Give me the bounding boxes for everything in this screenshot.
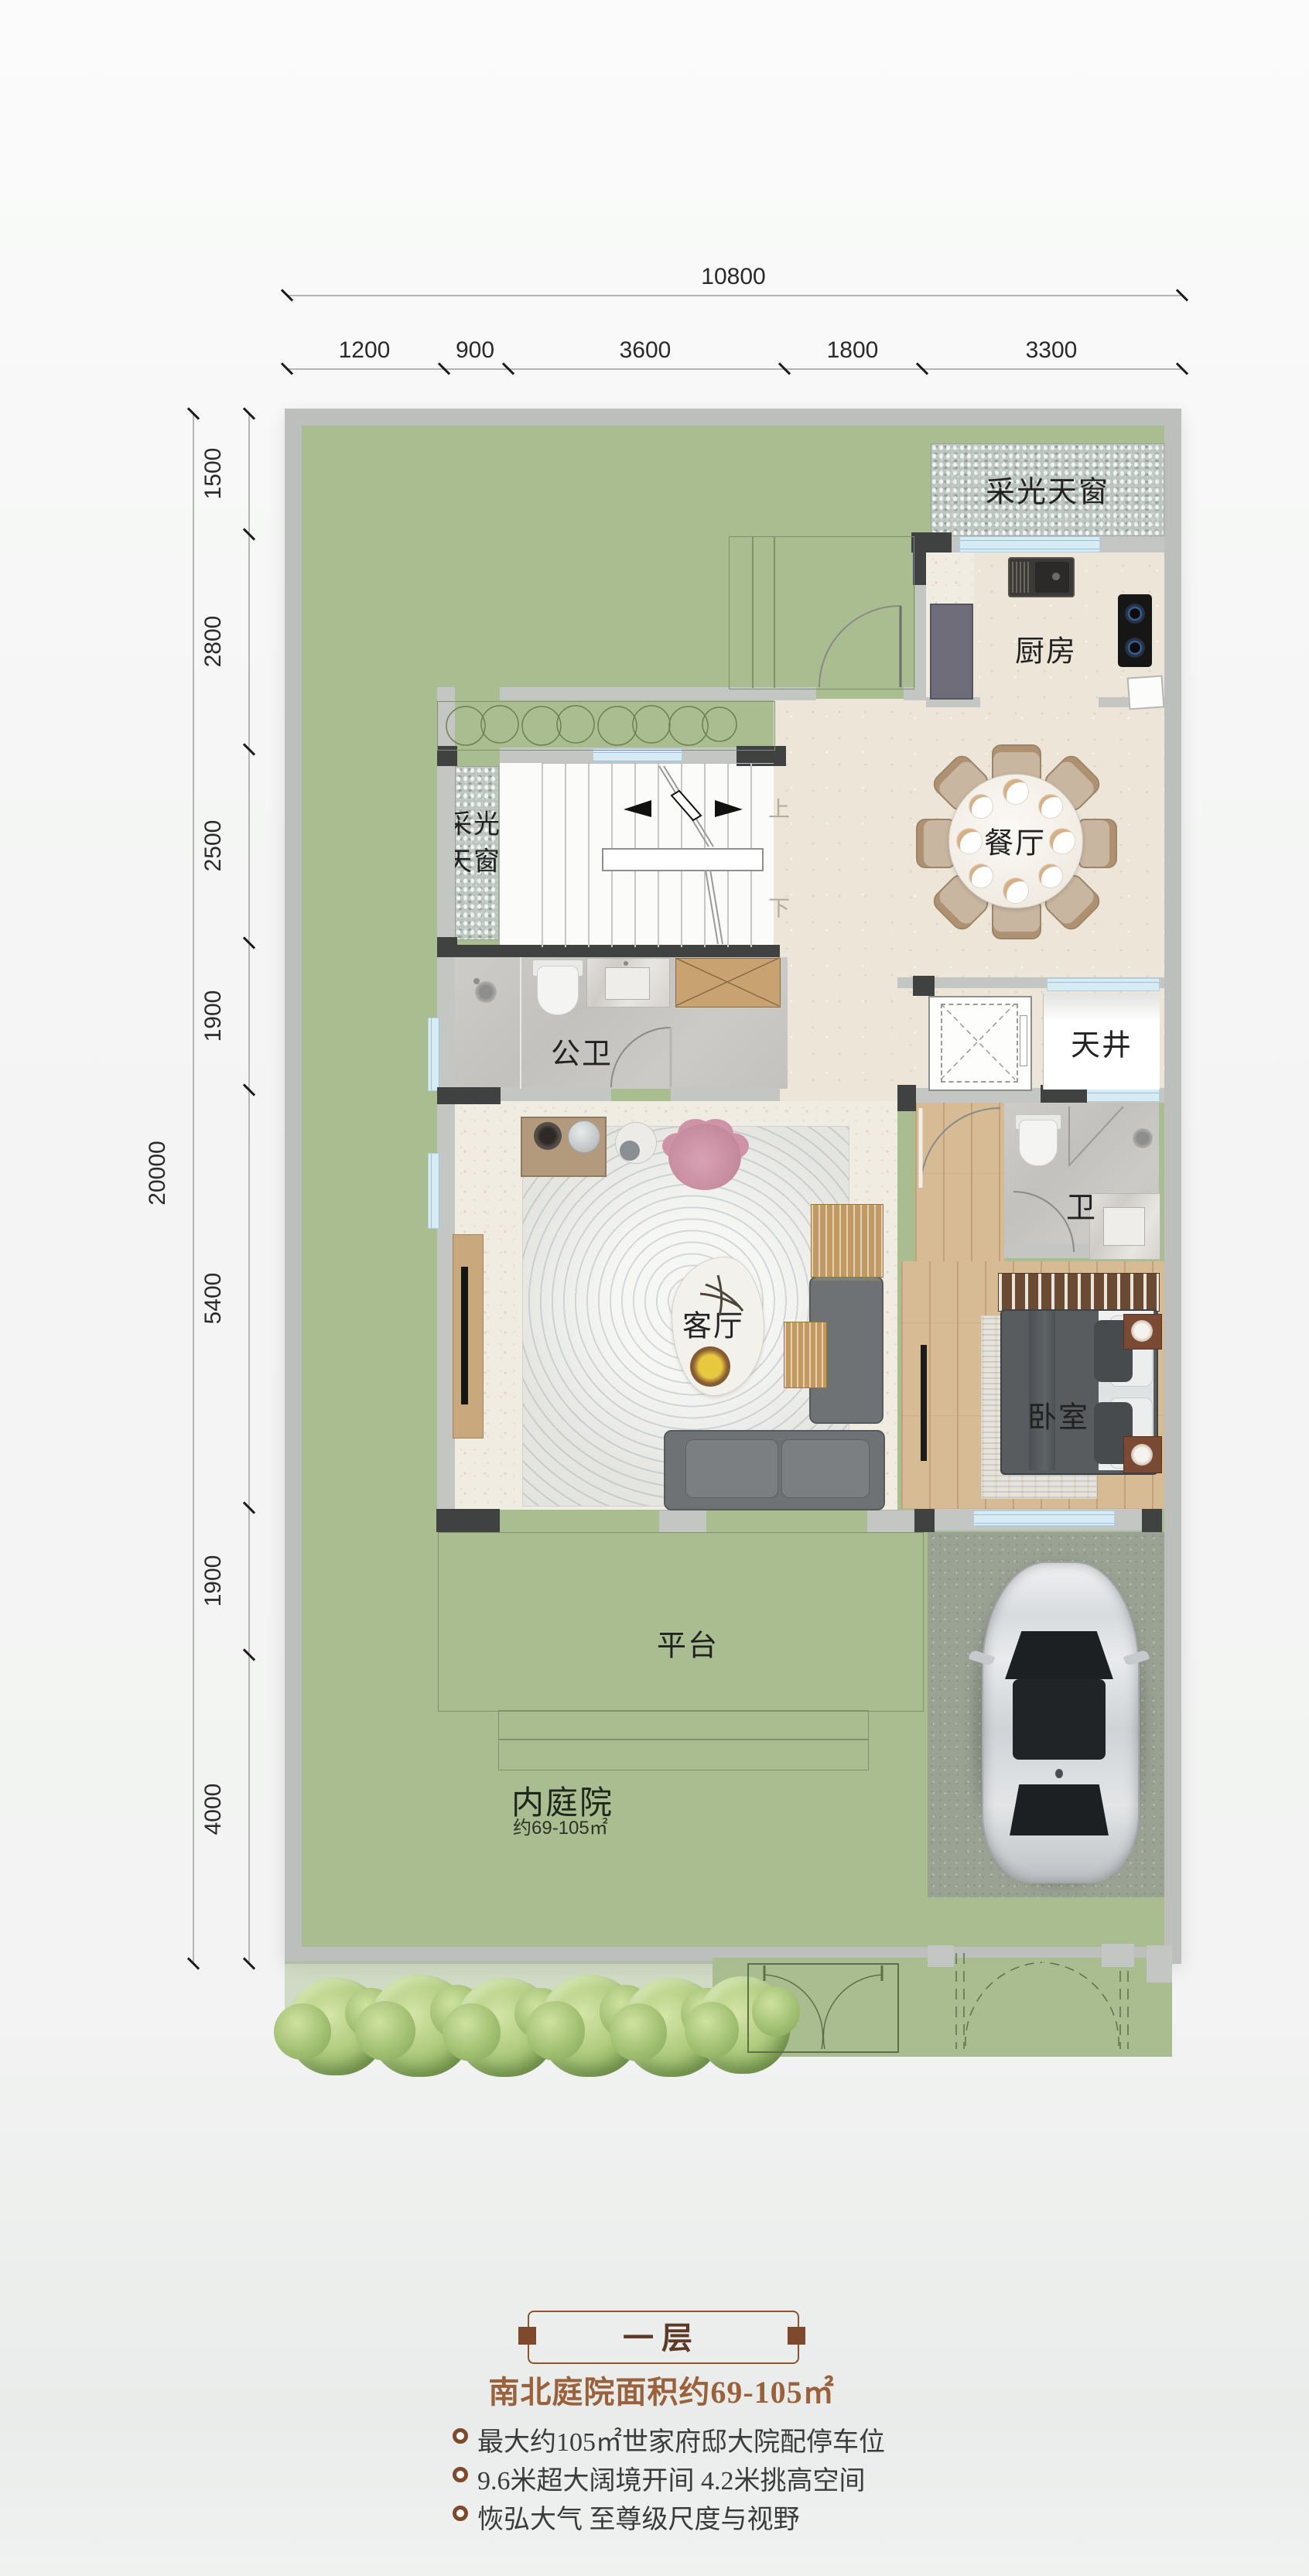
tv-screen: [461, 1267, 468, 1404]
dim-left-seg-label: 1900: [200, 1555, 227, 1607]
floor-tag-square: [518, 2327, 536, 2345]
wall-dark-seg: [437, 1087, 501, 1104]
bullet-ring-icon: [453, 2428, 468, 2444]
pubbath-divider: [520, 957, 521, 1089]
entry-step-line: [774, 536, 775, 688]
floorplan-page: { "dimensions": { "top_total": "10800", …: [0, 0, 1309, 2576]
caption-headline: 南北庭院面积约69-105㎡: [488, 2367, 834, 2412]
floor-tag-square: [788, 2327, 805, 2345]
vanity-faucet-dot: [624, 961, 628, 966]
living-label: 客厅: [682, 1302, 744, 1345]
gate-pillar: [928, 1945, 954, 1967]
car-roof-glass: [1013, 1679, 1106, 1760]
toilet-bowl: [537, 966, 579, 1015]
kitchen-cabinets: [930, 604, 973, 700]
kitchen-faucet-dot: [1052, 573, 1060, 580]
entry-court-outline: [729, 536, 914, 689]
sofa-cushion: [781, 1439, 870, 1498]
wall-dark-seg: [913, 551, 926, 585]
terrace-step: [498, 1710, 869, 1740]
place-setting: [1049, 828, 1075, 854]
bath-vanity-basin: [1103, 1207, 1145, 1246]
floor-tag-label: 一层: [623, 2313, 700, 2358]
gate-pillar: [1102, 1944, 1134, 1967]
wall-living-south-pier2: [867, 1510, 914, 1532]
terrace-step: [498, 1739, 869, 1770]
lightwell-label: 天井: [1071, 1021, 1133, 1064]
place-setting: [1003, 877, 1029, 904]
caption-bullet-row: 9.6米超大阔境开间 4.2米挑高空间: [453, 2459, 886, 2490]
wall-pubbath-south-b: [671, 1087, 780, 1101]
side-table-tray: [620, 1141, 640, 1161]
bed-headboard: [998, 1273, 1160, 1312]
nightstand-lamp: [1131, 1320, 1153, 1342]
dim-top-seg-line: [286, 368, 1181, 370]
dim-top-seg-label: 1800: [827, 337, 879, 364]
elevator-door-slot: [1020, 1015, 1027, 1066]
armchair-pink: [668, 1124, 741, 1190]
mid-hall-floor: [774, 699, 915, 1105]
decor-dome: [568, 1120, 600, 1153]
place-setting: [969, 864, 993, 888]
place-setting: [1038, 864, 1063, 888]
sofa-cushion: [685, 1439, 778, 1498]
bedroom-tv: [921, 1345, 927, 1461]
dim-left-total-line: [193, 413, 194, 1964]
car-logo: [1055, 1769, 1063, 1778]
decor-bowl: [534, 1122, 562, 1150]
bullet-ring-icon: [453, 2506, 468, 2521]
pubbath-label: 公卫: [551, 1030, 613, 1072]
caption-bullet-text: 最大约105㎡世家府邸大院配停车位: [477, 2420, 885, 2458]
entry-step-line: [752, 536, 754, 688]
kitchen-tray: [1127, 675, 1165, 710]
bench-slatted: [811, 1204, 883, 1278]
dining-label: 餐厅: [984, 819, 1046, 862]
skylight-top-label: 采光天窗: [986, 468, 1109, 511]
dim-left-seg-label: 2500: [200, 820, 227, 872]
window-lightwell-south: [1083, 1089, 1160, 1102]
courtyard-area-label: 约69-105㎡: [513, 1812, 608, 1839]
stove-burner: [1125, 638, 1145, 658]
car-top-view: [982, 1562, 1136, 1880]
place-setting: [1003, 778, 1029, 805]
shower-head-icon: [475, 981, 497, 1003]
kitchen-label: 厨房: [1015, 628, 1077, 670]
caption-bullet-text: 恢弘大气 至尊级尺度与视野: [477, 2498, 800, 2536]
wall-dark-seg: [1142, 1509, 1162, 1532]
kitchen-sink-drainer: [1012, 562, 1030, 593]
nightstand-lamp: [1131, 1444, 1153, 1466]
wall-dark-seg: [897, 1085, 916, 1111]
side-table-slatted: [784, 1322, 827, 1388]
wall-kitchen-north-b: [1100, 536, 1164, 552]
dim-left-seg-label: 5400: [200, 1273, 227, 1325]
dim-left-total-label: 20000: [145, 1141, 171, 1205]
storage-cabinet-x: [675, 958, 781, 1007]
dim-top-seg-label: 3300: [1026, 337, 1078, 364]
planter-strip: [437, 701, 775, 751]
bath-shower-head: [1133, 1128, 1153, 1148]
wall-dark-seg: [913, 976, 935, 996]
wall-living-south-pier1: [659, 1510, 706, 1532]
stair-down-label: 下: [768, 891, 791, 922]
place-setting: [1038, 794, 1063, 819]
caption-bullet-row: 恢弘大气 至尊级尺度与视野: [453, 2498, 886, 2529]
dim-left-seg-label: 2800: [200, 616, 227, 668]
dim-top-seg-label: 3600: [620, 337, 672, 364]
fruit-bowl: [690, 1346, 730, 1387]
dim-left-seg-label: 1500: [200, 448, 227, 500]
place-setting: [956, 828, 983, 854]
caption-bullet-text: 9.6米超大阔境开间 4.2米挑高空间: [477, 2459, 866, 2497]
dim-left-seg-label: 4000: [200, 1784, 227, 1835]
window-west-living: [428, 1153, 440, 1229]
dim-left-seg-line: [248, 413, 250, 1964]
stair-landing-rail: [602, 848, 764, 871]
stair-up-label: 上: [768, 792, 791, 823]
bath-toilet-bowl: [1019, 1120, 1058, 1166]
bed-blanket-fold: [1029, 1311, 1055, 1470]
window-bedroom-south: [973, 1510, 1115, 1526]
window-west-pubbath: [428, 1018, 440, 1091]
dim-top-total-line: [286, 295, 1181, 296]
wall-dark-seg: [911, 532, 952, 552]
caption-bullet-row: 最大约105㎡世家府邸大院配停车位: [453, 2420, 886, 2451]
gate-pillar: [1147, 1945, 1172, 1982]
stove-burner: [1125, 604, 1145, 624]
tv-console: [453, 1234, 484, 1439]
dim-top-seg-label: 1200: [339, 337, 391, 364]
dim-top-seg-label: 900: [456, 337, 494, 364]
bullet-ring-icon: [453, 2467, 468, 2482]
window-lightwell-north: [1047, 978, 1160, 991]
bath-label: 卫: [1066, 1184, 1097, 1226]
place-setting: [969, 794, 993, 819]
terrace-label: 平台: [657, 1622, 719, 1664]
elevator-cab-dashed: [941, 1004, 1018, 1083]
wall-dark-seg: [436, 1509, 500, 1532]
car-rear-window: [1007, 1784, 1112, 1835]
wall-dark-seg: [914, 1509, 935, 1532]
window-kitchen-north: [959, 536, 1100, 552]
dining-chair: [1078, 819, 1117, 868]
dim-top-total-label: 10800: [701, 264, 765, 290]
hedge-bush: [698, 1976, 791, 2074]
bedroom-label: 卧室: [1027, 1394, 1089, 1436]
dim-left-seg-label: 1900: [200, 990, 227, 1042]
vanity-basin: [605, 967, 650, 1000]
hallway-wood-floor: [915, 1103, 1004, 1267]
